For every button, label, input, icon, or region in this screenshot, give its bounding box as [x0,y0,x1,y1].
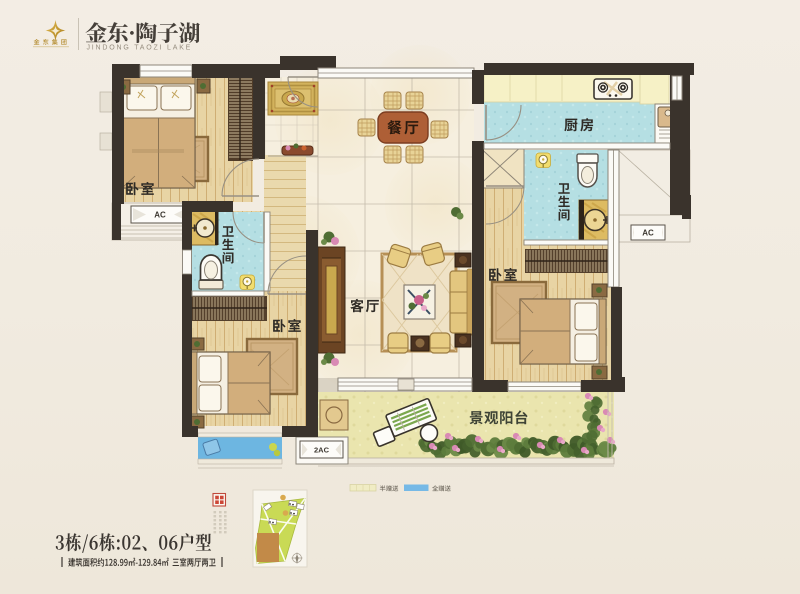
svg-text:AC: AC [154,211,166,220]
svg-text:2AC: 2AC [314,446,330,455]
svg-text:JINDONG TAOZI LAKE: JINDONG TAOZI LAKE [87,44,193,51]
svg-text:AC: AC [642,229,654,238]
